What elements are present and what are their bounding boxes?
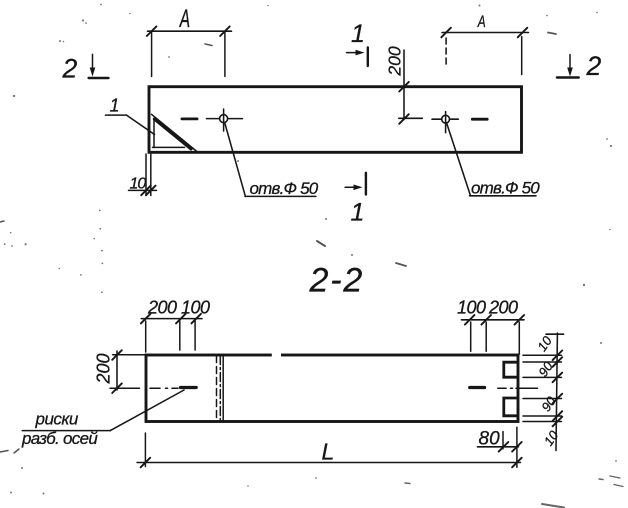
svg-text:200: 200: [488, 298, 518, 318]
svg-text:2-2: 2-2: [309, 262, 365, 300]
svg-text:отв.Ф 50: отв.Ф 50: [471, 179, 540, 198]
svg-text:1: 1: [351, 20, 365, 48]
svg-text:1: 1: [351, 199, 365, 227]
svg-text:2: 2: [586, 51, 602, 81]
svg-text:риски: риски: [35, 410, 79, 429]
svg-text:10: 10: [541, 427, 562, 448]
svg-text:200: 200: [385, 46, 405, 76]
svg-text:80: 80: [479, 429, 501, 450]
svg-text:10: 10: [130, 176, 147, 193]
svg-text:100: 100: [181, 298, 210, 318]
svg-text:разб. осей: разб. осей: [21, 429, 98, 448]
svg-text:2: 2: [62, 54, 78, 84]
svg-text:1: 1: [110, 96, 120, 116]
svg-text:A: A: [178, 6, 190, 34]
svg-text:10: 10: [534, 333, 555, 354]
svg-text:200: 200: [94, 353, 114, 384]
svg-text:отв.Ф 50: отв.Ф 50: [250, 179, 319, 198]
svg-text:A: A: [477, 13, 486, 31]
svg-text:L: L: [322, 439, 335, 465]
svg-text:100: 100: [457, 298, 486, 318]
svg-text:200: 200: [147, 298, 177, 318]
